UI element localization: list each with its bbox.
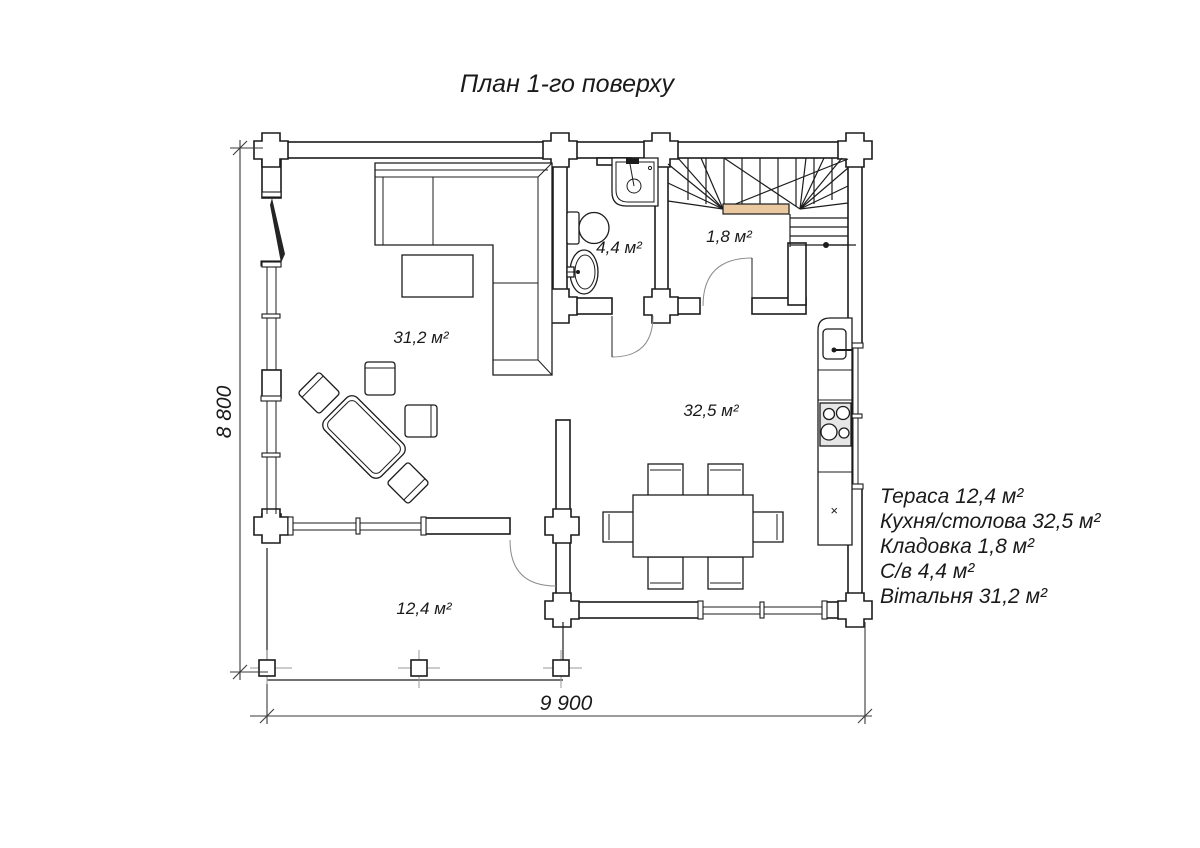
dining-chair (648, 557, 683, 589)
floor-plan-page: План 1-го поверху (0, 0, 1200, 848)
legend-line: С/в 4,4 м² (880, 560, 975, 583)
room-label-kitchen: 32,5 м² (683, 401, 739, 420)
lounge-group (298, 362, 437, 504)
room-label-living: 31,2 м² (393, 328, 449, 347)
terrace-post (259, 660, 275, 676)
dining-set (603, 464, 783, 589)
legend-line: Кладовка 1,8 м² (880, 535, 1035, 558)
armchair (365, 362, 395, 395)
dim-height-label: 8 800 (213, 385, 236, 438)
armchair (387, 462, 429, 504)
room-label-storage: 1,8 м² (706, 227, 753, 246)
dining-chair (708, 557, 743, 589)
stove (820, 403, 851, 446)
legend-line: Вітальня 31,2 м² (880, 585, 1048, 608)
dining-chair (648, 464, 683, 496)
shower (612, 158, 658, 206)
legend-line: Тераса 12,4 м² (880, 485, 1024, 508)
page-title: План 1-го поверху (460, 70, 676, 98)
room-label-bathroom: 4,4 м² (596, 238, 643, 257)
entrance-door-leaf (270, 198, 285, 263)
dining-chair (708, 464, 743, 496)
legend: Тераса 12,4 м² Кухня/столова 32,5 м² Кла… (880, 485, 1101, 608)
armchair (405, 405, 437, 437)
terrace (250, 548, 582, 688)
room-label-terrace: 12,4 м² (396, 599, 452, 618)
dining-table (633, 495, 753, 557)
bathroom-fixtures (567, 158, 658, 294)
terrace-post (553, 660, 569, 676)
floor-plan-svg: План 1-го поверху (0, 0, 1200, 848)
stair-landing (723, 204, 789, 214)
terrace-post (411, 660, 427, 676)
dining-chair (752, 512, 783, 542)
armchair (298, 372, 340, 414)
legend-line: Кухня/столова 32,5 м² (880, 510, 1101, 533)
dining-chair (603, 512, 634, 542)
coffee-table (402, 255, 473, 297)
lounge-table (319, 392, 408, 481)
washbasin (567, 250, 598, 294)
kitchen-counter: × (818, 318, 853, 545)
stairs (668, 158, 856, 248)
cabinet-mark: × (830, 503, 838, 518)
dim-width-label: 9 900 (540, 692, 593, 715)
